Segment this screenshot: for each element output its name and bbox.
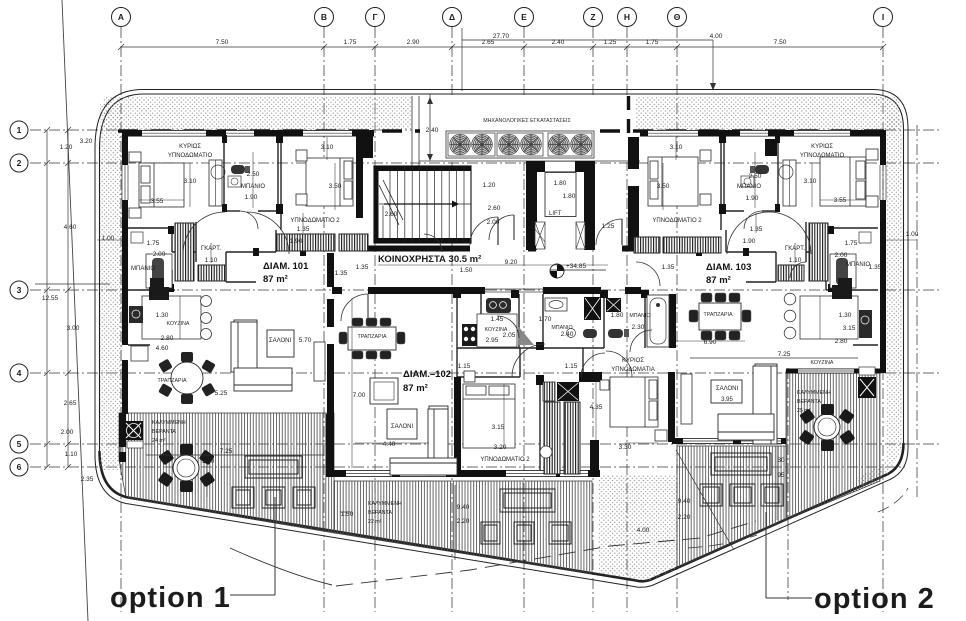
svg-text:87 m²: 87 m² [403,383,428,394]
svg-text:1.80: 1.80 [554,180,567,187]
svg-text:option 2: option 2 [814,583,935,615]
svg-text:2.00: 2.00 [835,252,848,259]
svg-text:1.50: 1.50 [460,267,473,274]
svg-text:1.35: 1.35 [869,264,882,271]
svg-text:3: 3 [17,285,22,295]
svg-text:ΔΙΑΜ. 103: ΔΙΑΜ. 103 [706,262,751,273]
svg-text:4.60: 4.60 [64,224,77,231]
svg-text:I: I [882,12,884,22]
svg-text:1.75: 1.75 [845,240,858,247]
svg-text:1.90: 1.90 [290,238,303,245]
svg-text:2.00: 2.00 [61,429,74,436]
svg-text:4.00: 4.00 [637,527,650,534]
svg-text:7.25: 7.25 [220,448,233,455]
svg-text:ΣΑΛΟΝΙ: ΣΑΛΟΝΙ [716,386,739,392]
svg-text:2.40: 2.40 [552,39,565,46]
svg-text:5.70: 5.70 [299,337,312,344]
svg-text:4.40: 4.40 [383,441,396,448]
svg-text:1.25: 1.25 [604,39,617,46]
svg-text:3.30: 3.30 [619,444,632,451]
svg-text:2.90: 2.90 [407,39,420,46]
svg-text:5.25: 5.25 [215,390,228,397]
svg-text:2.40: 2.40 [561,331,574,338]
svg-text:1.75: 1.75 [646,39,659,46]
svg-text:Θ: Θ [674,12,681,22]
svg-text:3.00: 3.00 [67,325,80,332]
svg-text:1.80: 1.80 [563,193,576,200]
svg-text:2.80: 2.80 [161,335,174,342]
svg-text:7.00: 7.00 [353,392,366,399]
svg-text:1.35: 1.35 [662,264,675,271]
svg-text:6.90: 6.90 [704,339,717,346]
svg-text:2.20: 2.20 [678,514,691,521]
svg-text:B: B [321,12,327,22]
svg-text:2: 2 [17,158,22,168]
svg-text:7.25: 7.25 [778,351,791,358]
svg-text:87 m²: 87 m² [706,275,731,286]
svg-text:1.75: 1.75 [147,240,160,247]
svg-text:1.45: 1.45 [491,316,504,323]
svg-text:+34.85: +34.85 [566,263,586,270]
svg-text:5: 5 [17,439,22,449]
svg-text:E: E [521,12,527,22]
svg-text:95: 95 [777,472,785,479]
svg-text:22 m²: 22 m² [368,519,382,525]
svg-text:27.70: 27.70 [493,33,510,40]
svg-text:4: 4 [17,368,22,378]
svg-text:24 m²: 24 m² [152,438,166,444]
svg-text:3.20: 3.20 [80,138,93,145]
svg-text:87 m²: 87 m² [263,274,288,285]
svg-text:2.60: 2.60 [385,211,398,218]
svg-text:ΚΟΙΝΟΧΡΗΣΤΑ 30.5 m²: ΚΟΙΝΟΧΡΗΣΤΑ 30.5 m² [378,254,481,265]
svg-text:ΤΡΑΠΖΑΡΙΑ: ΤΡΑΠΖΑΡΙΑ [357,334,387,340]
svg-text:ΔΙΑΜ. 101: ΔΙΑΜ. 101 [263,261,309,272]
svg-text:ΤΡΑΠΖΑΡΙΑ: ΤΡΑΠΖΑΡΙΑ [703,312,733,318]
svg-text:ΚΑΛΥΜΜΕΝΗ: ΚΑΛΥΜΜΕΝΗ [152,420,186,426]
svg-text:2.40: 2.40 [426,127,439,134]
svg-text:LIFT: LIFT [549,211,562,217]
svg-text:2.20: 2.20 [457,518,470,525]
svg-text:ΜΠΑΝΙΟ: ΜΠΑΝΙΟ [629,313,650,319]
svg-text:ΒΕΡΑΝΤΑ: ΒΕΡΑΝΤΑ [797,399,821,405]
svg-text:Δ: Δ [449,12,455,22]
svg-text:1.10: 1.10 [65,451,78,458]
svg-text:ΒΕΡΑΝΤΑ: ΒΕΡΑΝΤΑ [152,429,176,435]
svg-text:ΚΥΡΙΟΣ: ΚΥΡΙΟΣ [622,358,644,364]
svg-text:1: 1 [17,125,22,135]
svg-text:option 1: option 1 [110,582,231,614]
svg-text:2.05: 2.05 [503,332,516,339]
svg-text:1.15: 1.15 [458,363,471,370]
svg-text:A: A [118,12,124,22]
svg-text:1.35: 1.35 [335,270,348,277]
svg-text:2.60: 2.60 [488,205,501,212]
svg-text:Z: Z [590,12,595,22]
svg-text:ΒΕΡΑΝΤΑ: ΒΕΡΑΝΤΑ [368,510,392,516]
svg-text:ΥΠΝΟΔΩΜΑΤΙΑ: ΥΠΝΟΔΩΜΑΤΙΑ [611,367,655,373]
svg-text:7.50: 7.50 [774,39,787,46]
svg-text:1.30: 1.30 [156,312,169,319]
svg-text:ΔΙΑΜ.–102: ΔΙΑΜ.–102 [403,369,451,380]
svg-text:ΜΠΑΝΙΟ: ΜΠΑΝΙΟ [846,262,870,268]
svg-text:1.90: 1.90 [743,238,756,245]
svg-text:6: 6 [17,462,22,472]
svg-text:2.30: 2.30 [632,324,645,331]
svg-text:ΤΡΑΠΖΑΡΙΑ: ΤΡΑΠΖΑΡΙΑ [157,378,187,384]
svg-text:3.10: 3.10 [804,178,817,185]
svg-text:3.15: 3.15 [843,325,856,332]
svg-text:ΚΟΥΖΙΝΑ: ΚΟΥΖΙΝΑ [811,360,834,366]
svg-text:1.15: 1.15 [565,363,578,370]
svg-text:3.20: 3.20 [494,444,507,451]
svg-text:ΚΑΛΥΜΜΕΝΗ: ΚΑΛΥΜΜΕΝΗ [797,390,831,396]
svg-text:1.70: 1.70 [539,316,552,323]
svg-text:25 m²: 25 m² [797,408,811,414]
svg-text:4.60: 4.60 [156,345,169,352]
svg-text:1.90: 1.90 [245,194,258,201]
svg-text:4.00: 4.00 [710,33,723,40]
svg-text:ΜΗΧΑΝΟΛΟΓΙΚΕΣ ΕΓΚΑΤΑΣΤΑΣΕΙΣ: ΜΗΧΑΝΟΛΟΓΙΚΕΣ ΕΓΚΑΤΑΣΤΑΣΕΙΣ [483,118,571,124]
svg-text:9.40: 9.40 [457,504,470,511]
svg-text:12.55: 12.55 [42,295,59,302]
svg-text:9.40: 9.40 [678,498,691,505]
svg-text:H: H [624,12,630,22]
svg-text:ΥΠΝΟΔΩΜΑΤΙΟ 2: ΥΠΝΟΔΩΜΑΤΙΟ 2 [480,457,530,463]
svg-text:1.60: 1.60 [202,458,215,465]
svg-text:ΚΥΡΙΩΣ: ΚΥΡΙΩΣ [811,144,833,150]
svg-text:1.90: 1.90 [746,195,759,202]
svg-text:1.30: 1.30 [839,312,852,319]
svg-text:1.35: 1.35 [356,264,369,271]
svg-text:1.80: 1.80 [611,312,624,319]
svg-text:2.95: 2.95 [486,337,499,344]
svg-text:1.75: 1.75 [344,39,357,46]
svg-text:3.95: 3.95 [721,397,733,403]
svg-text:ΜΠΑΝΙΟ: ΜΠΑΝΙΟ [737,184,761,190]
svg-text:ΣΑΛΟΝΙ: ΣΑΛΟΝΙ [391,424,414,430]
svg-text:ΥΠΝΟΔΩΜΑΤΙΟ 2: ΥΠΝΟΔΩΜΑΤΙΟ 2 [652,218,702,224]
svg-text:2.00: 2.00 [153,251,166,258]
svg-text:ΥΠΝΟΔΩΜΑΤΙΟ 2: ΥΠΝΟΔΩΜΑΤΙΟ 2 [290,218,340,224]
svg-text:ΥΠΝΟΔΩΜΑΤΙΟ: ΥΠΝΟΔΩΜΑΤΙΟ [800,153,845,159]
svg-text:ΜΠΑΝΙΟ: ΜΠΑΝΙΟ [131,266,155,272]
svg-text:Γ: Γ [372,12,377,22]
svg-text:3.55: 3.55 [834,197,847,204]
svg-text:ΚΑΛΥΜΜΕΝΗ: ΚΑΛΥΜΜΕΝΗ [368,501,402,507]
svg-text:1.20: 1.20 [60,144,73,151]
svg-text:ΚΥΡΙΩΣ: ΚΥΡΙΩΣ [179,144,201,150]
svg-text:2.65: 2.65 [64,400,77,407]
svg-text:1.20: 1.20 [483,182,496,189]
svg-text:2.00: 2.00 [487,219,500,226]
svg-text:1.25: 1.25 [602,223,615,230]
svg-text:ΣΑΛΟΝΙ: ΣΑΛΟΝΙ [269,338,292,344]
svg-text:ΚΟΥΖΙΝΑ: ΚΟΥΖΙΝΑ [167,321,190,327]
svg-text:2.35: 2.35 [81,476,94,483]
svg-text:30: 30 [777,457,785,464]
svg-text:7.50: 7.50 [216,39,229,46]
svg-text:ΥΠΝΟΔΩΜΑΤΙΟ: ΥΠΝΟΔΩΜΑΤΙΟ [168,153,213,159]
svg-text:2.65: 2.65 [482,39,495,46]
svg-text:2.80: 2.80 [835,338,848,345]
svg-text:3.15: 3.15 [492,424,505,431]
svg-text:3.55: 3.55 [151,198,164,205]
